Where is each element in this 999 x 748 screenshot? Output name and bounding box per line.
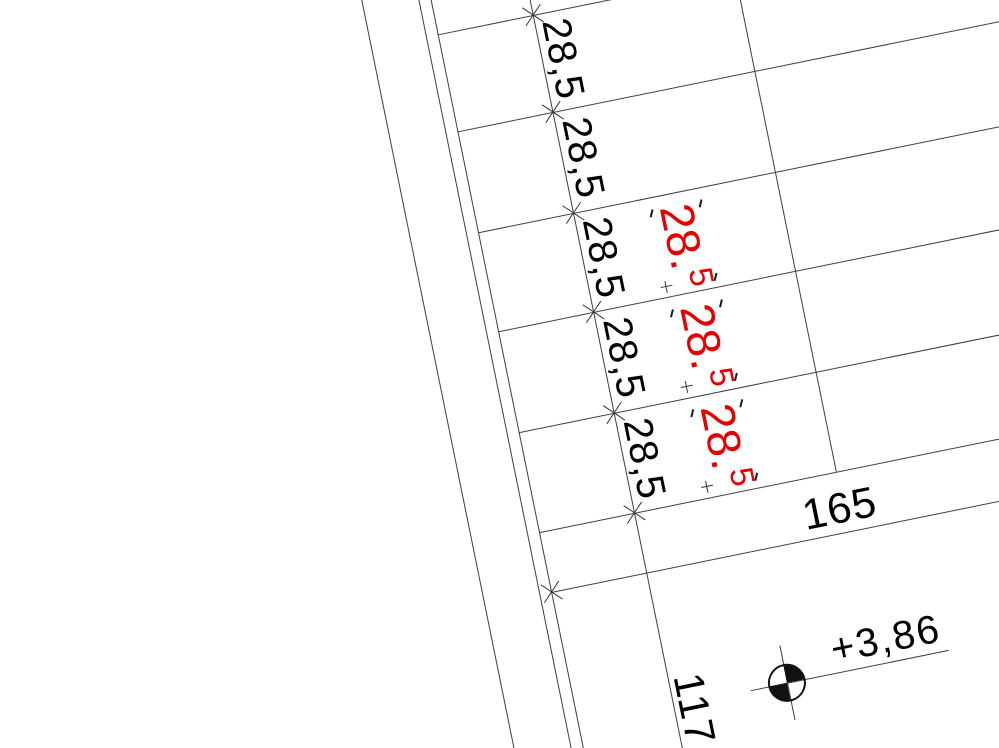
elevation-label: +3,86 xyxy=(827,609,944,670)
parcel-number-group: 28.5 xyxy=(653,376,793,510)
benchmark-symbol xyxy=(765,660,810,705)
row-length-label: 165 xyxy=(799,481,881,538)
survey-point-mark xyxy=(700,480,714,494)
parcel-number-label: 28.5 xyxy=(653,200,716,291)
dimension-label: 28,5 xyxy=(535,15,591,103)
rotated-plan: 28,5 28,5 28,5 28,5 28,5 117 28.5 28.5 2… xyxy=(0,0,999,748)
parcel-number-label: 28.5 xyxy=(693,400,756,491)
dimension-tick xyxy=(621,500,647,526)
parcel-number-label: 28.5 xyxy=(673,300,736,391)
elevation-marker: +3,86 xyxy=(734,599,988,740)
road-edge-line-right xyxy=(428,0,588,748)
dimension-label: 28,5 xyxy=(555,114,611,202)
dimension-label-117: 117 xyxy=(666,669,722,748)
dimension-tick xyxy=(538,579,564,605)
plan-canvas: 28,5 28,5 28,5 28,5 28,5 117 28.5 28.5 2… xyxy=(0,0,999,748)
